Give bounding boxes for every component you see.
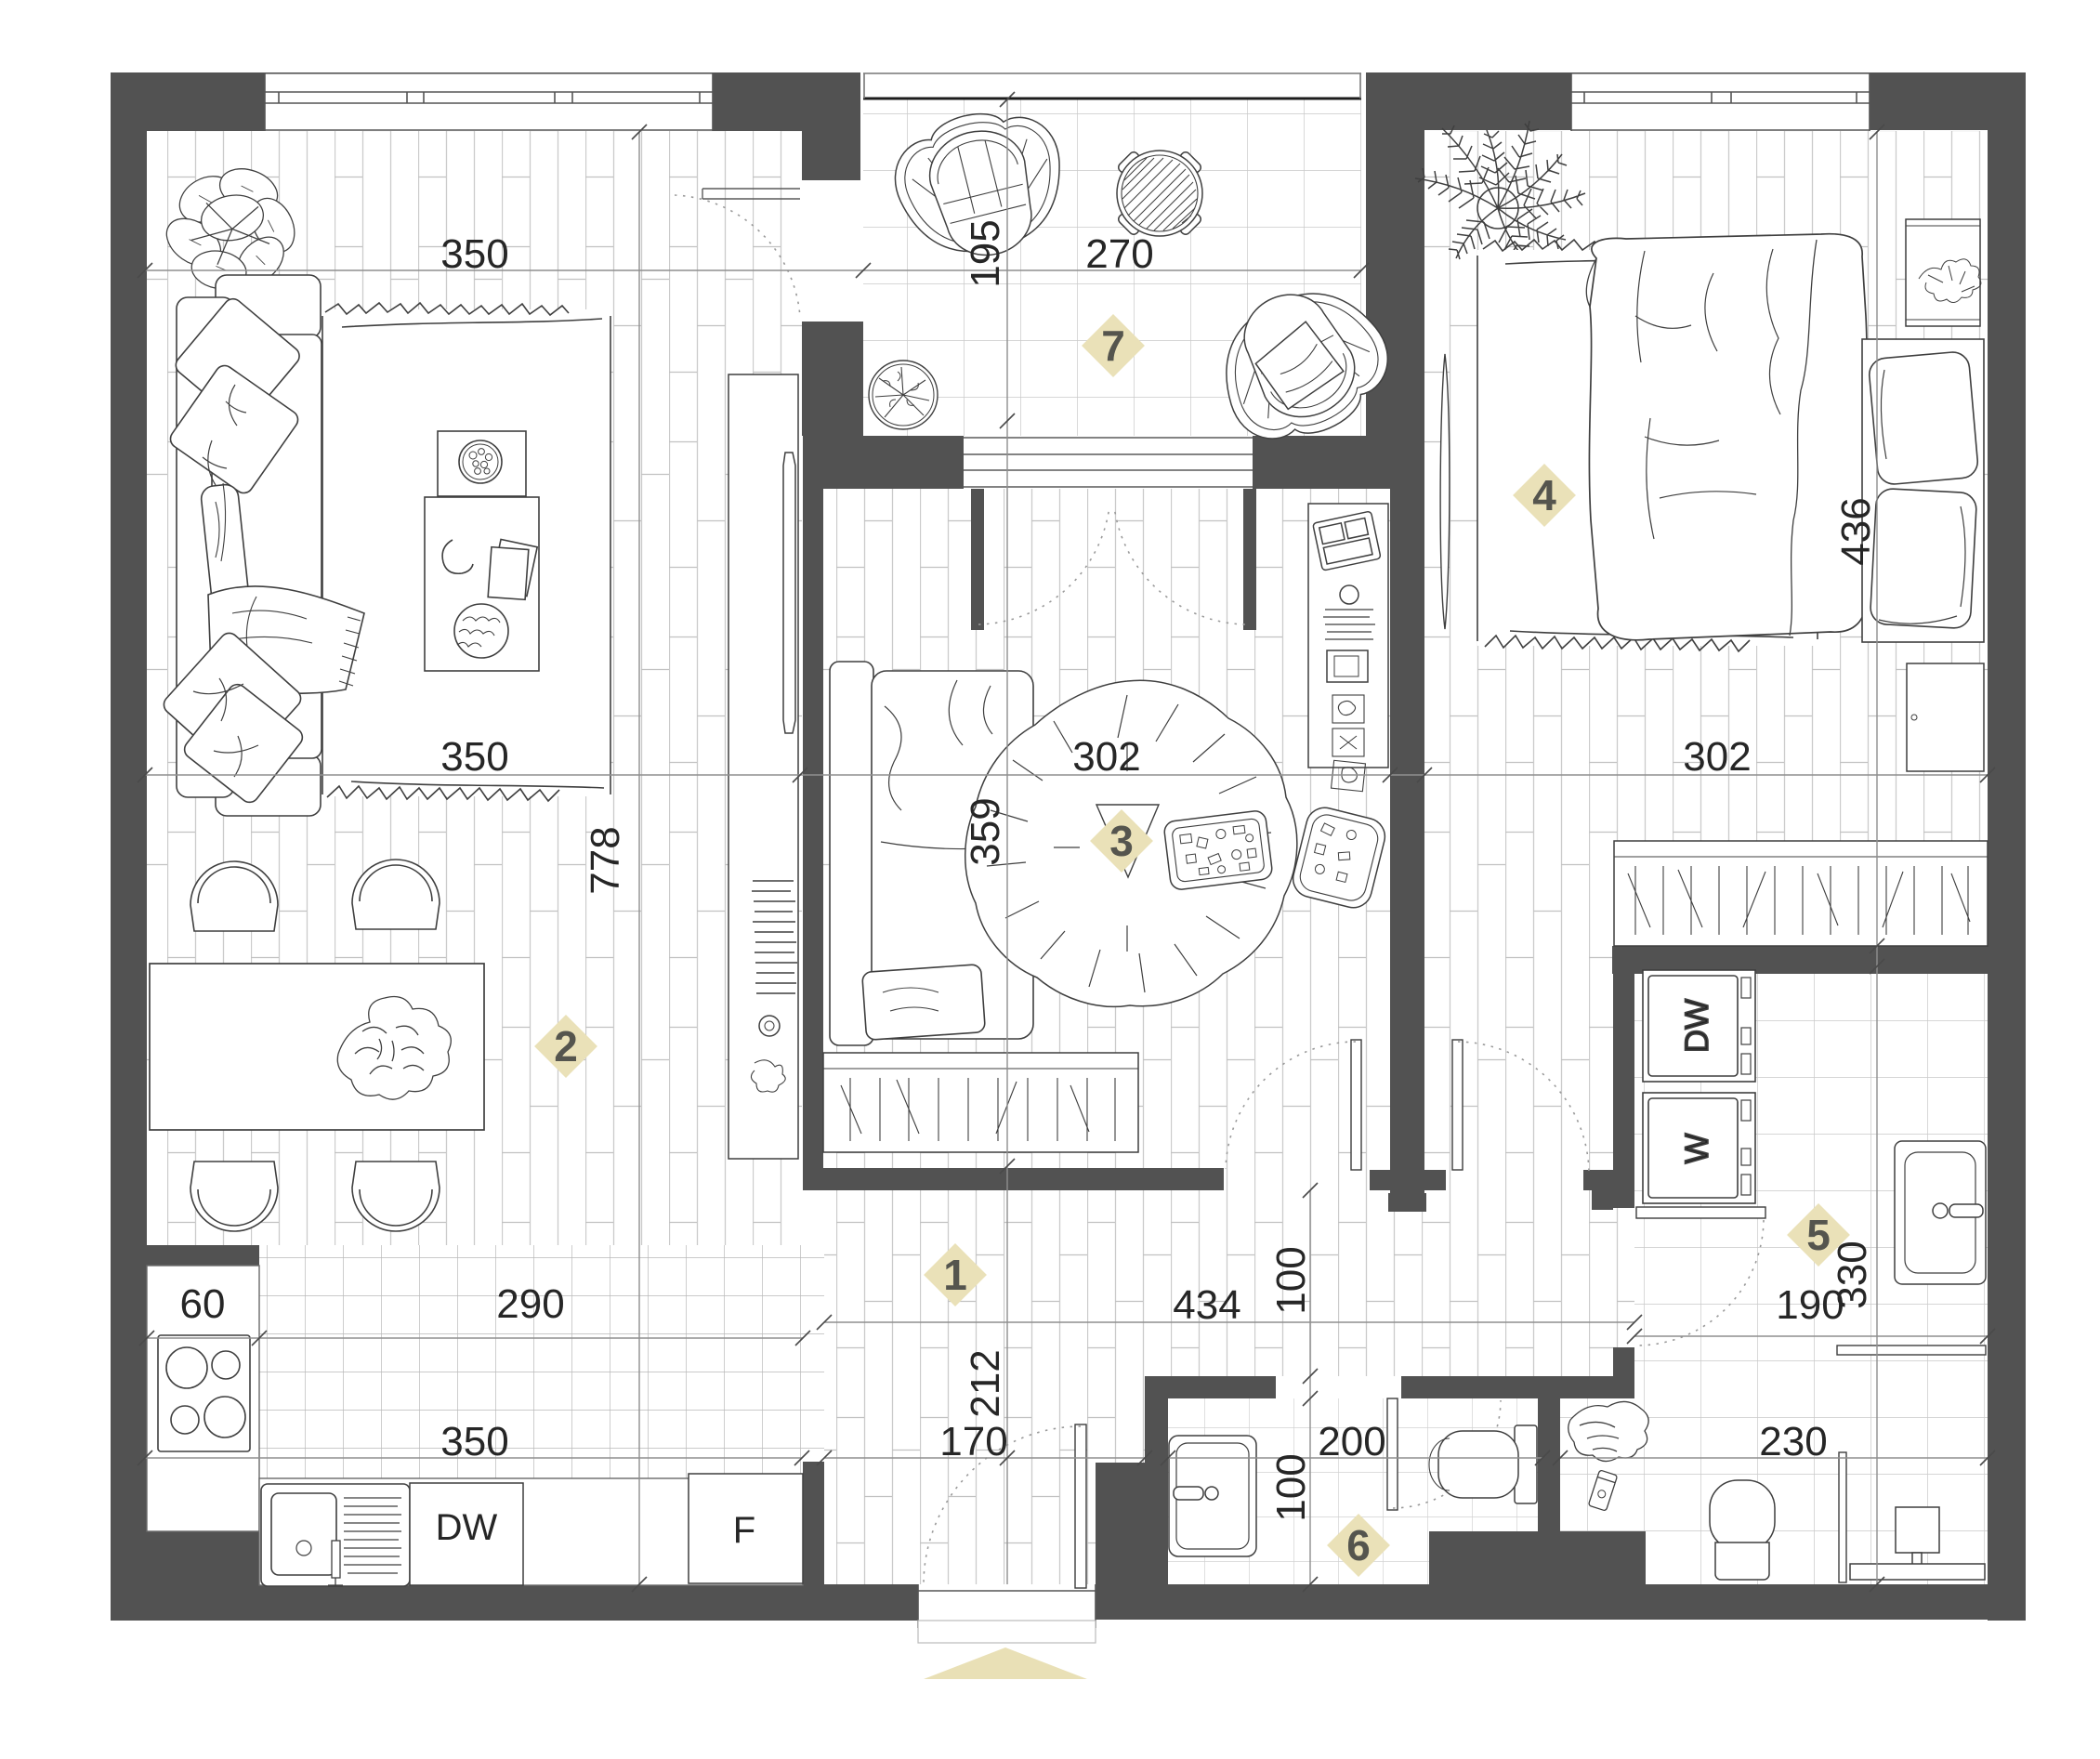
svg-text:270: 270: [1085, 231, 1153, 277]
svg-text:7: 7: [1101, 322, 1125, 370]
svg-text:100: 100: [1268, 1246, 1314, 1314]
svg-text:100: 100: [1268, 1453, 1314, 1521]
svg-text:350: 350: [440, 734, 508, 780]
svg-text:4: 4: [1532, 471, 1556, 519]
svg-text:170: 170: [939, 1419, 1007, 1464]
svg-text:1: 1: [943, 1251, 967, 1299]
svg-text:434: 434: [1173, 1282, 1240, 1328]
svg-text:302: 302: [1683, 734, 1751, 780]
svg-text:2: 2: [554, 1022, 578, 1070]
svg-text:DW: DW: [1679, 999, 1715, 1053]
svg-text:200: 200: [1318, 1419, 1385, 1464]
svg-text:290: 290: [496, 1281, 564, 1327]
svg-text:436: 436: [1833, 497, 1879, 565]
svg-text:60: 60: [180, 1281, 226, 1327]
svg-text:3: 3: [1109, 817, 1134, 865]
svg-text:F: F: [733, 1510, 755, 1551]
svg-text:5: 5: [1806, 1211, 1831, 1259]
svg-text:230: 230: [1759, 1419, 1827, 1464]
svg-text:W: W: [1679, 1133, 1715, 1163]
svg-text:359: 359: [963, 797, 1008, 865]
svg-text:778: 778: [583, 826, 628, 894]
svg-text:6: 6: [1346, 1521, 1371, 1569]
svg-text:212: 212: [963, 1349, 1008, 1417]
svg-text:330: 330: [1830, 1240, 1875, 1308]
svg-text:DW: DW: [436, 1507, 498, 1548]
svg-text:302: 302: [1072, 734, 1140, 780]
svg-text:350: 350: [440, 231, 508, 277]
svg-text:350: 350: [440, 1419, 508, 1464]
svg-text:195: 195: [963, 219, 1008, 287]
